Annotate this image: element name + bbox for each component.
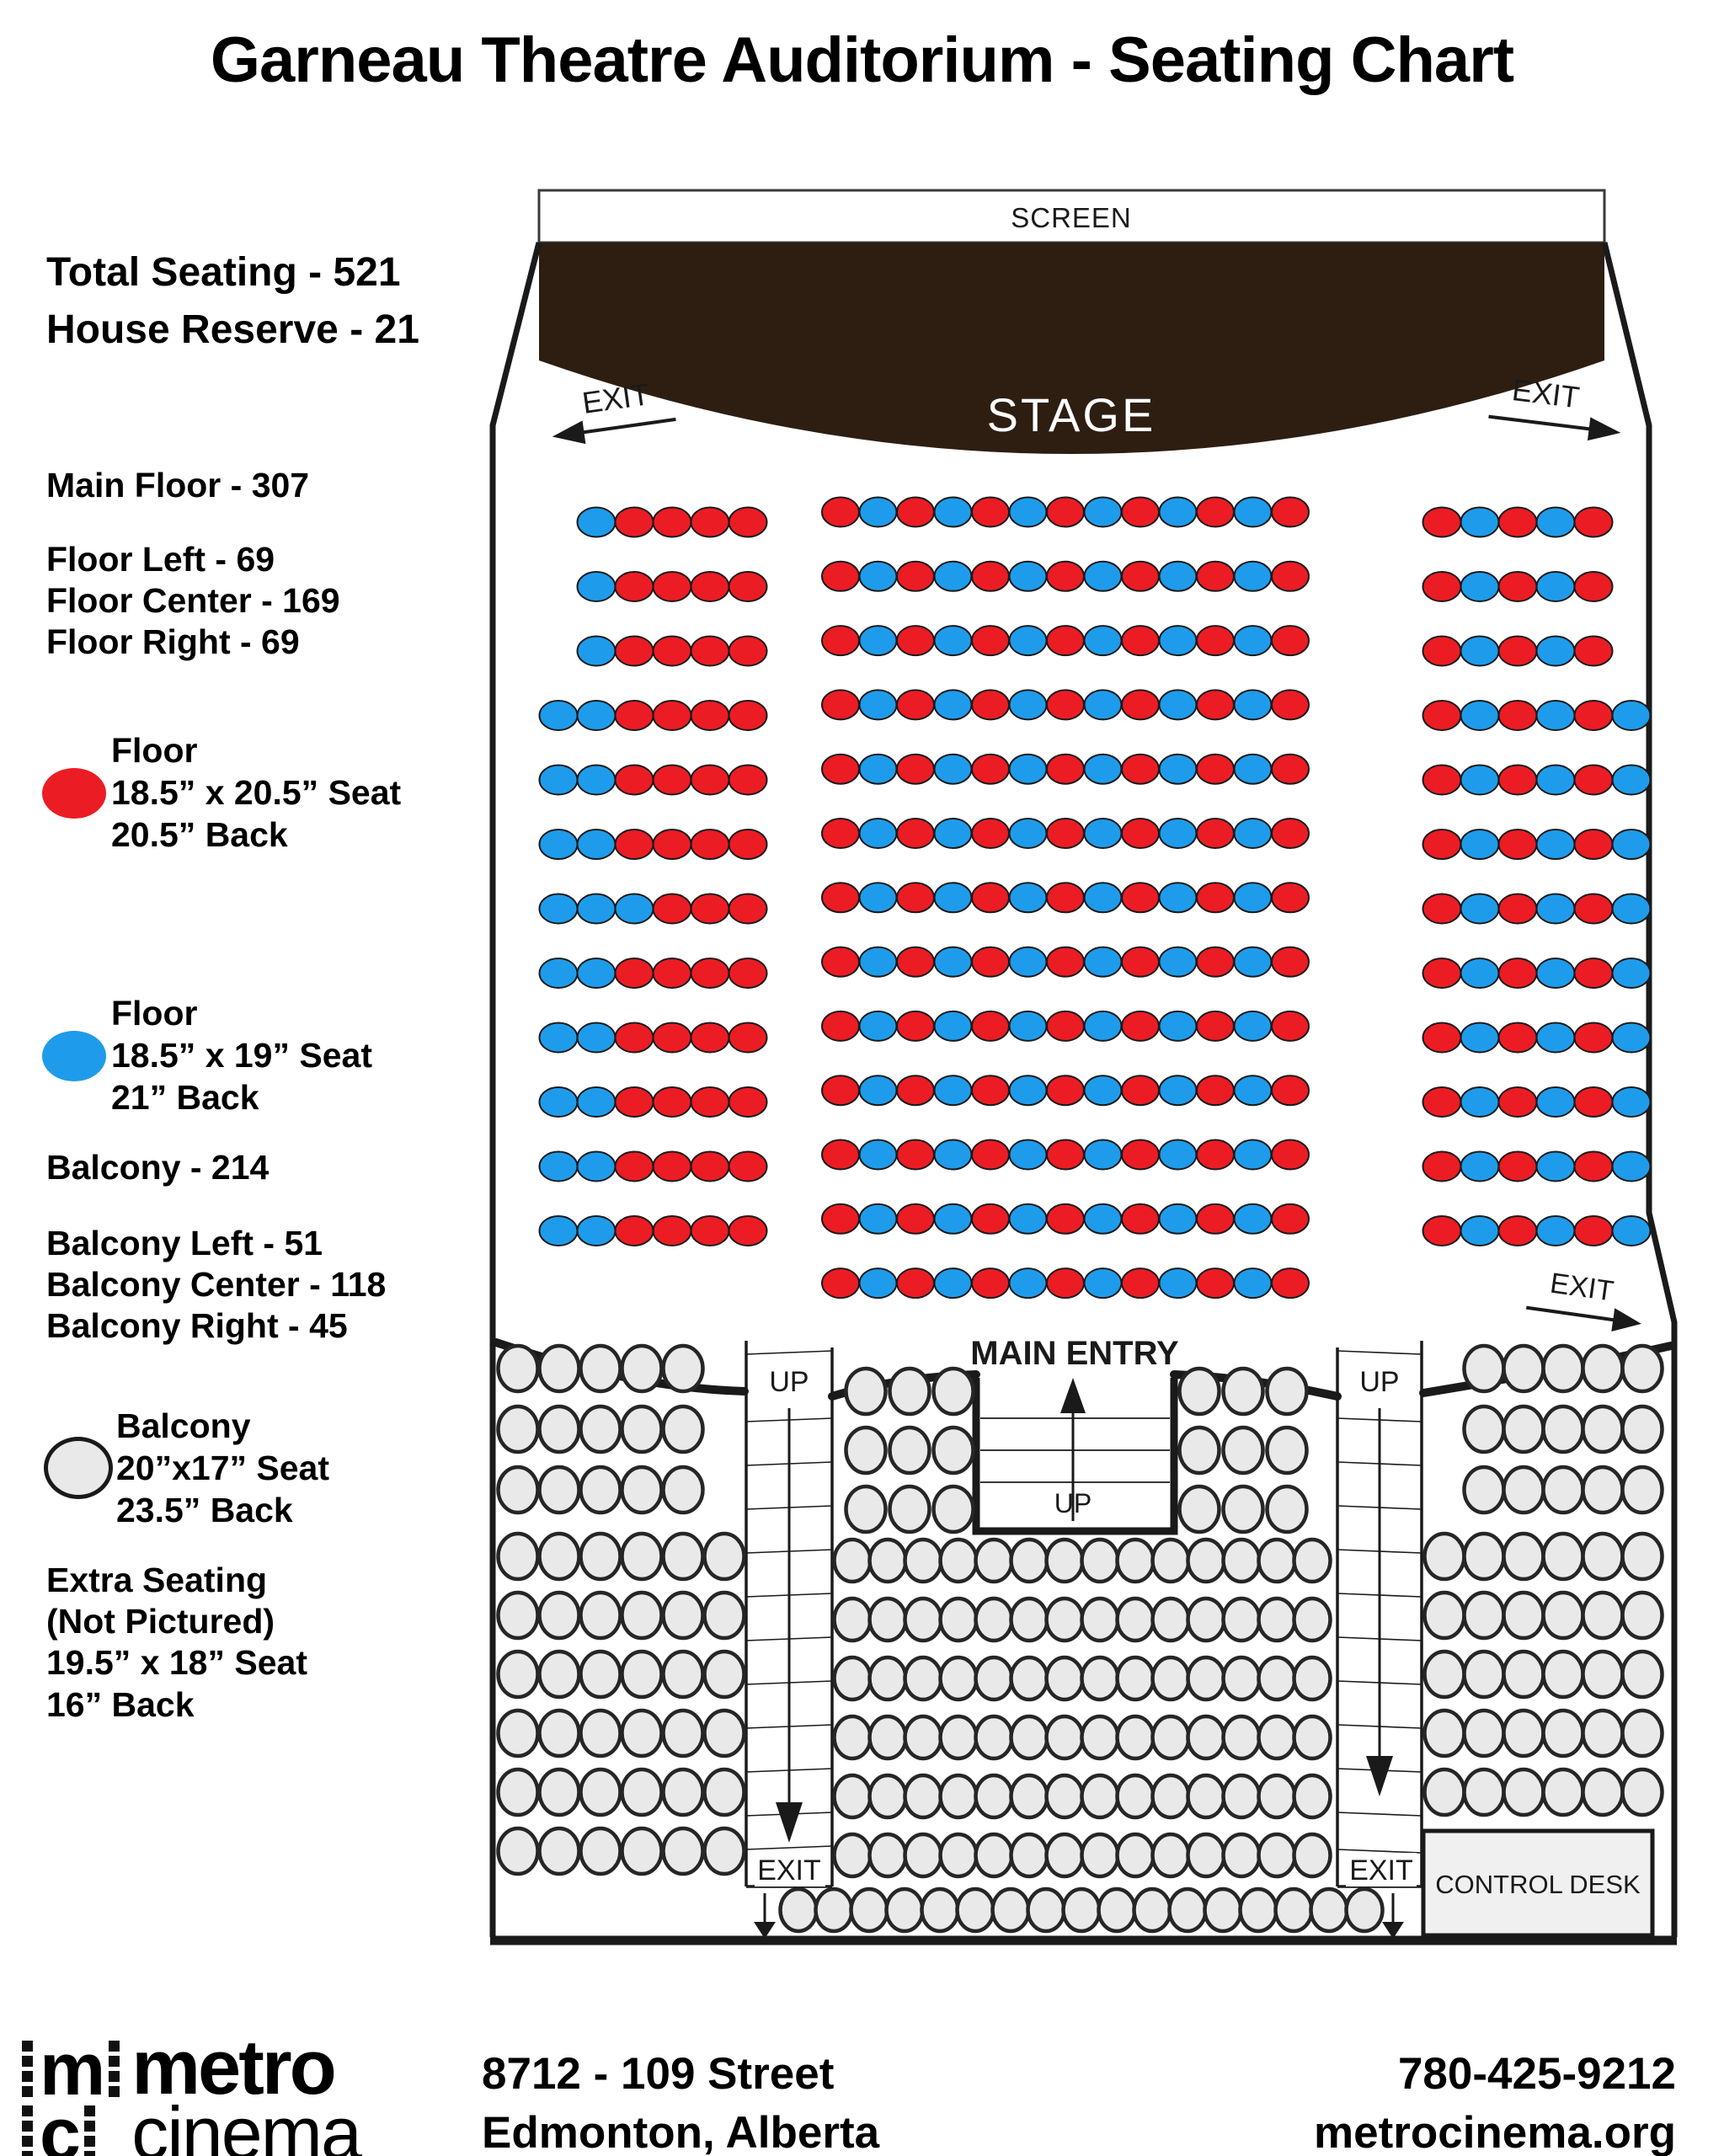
seat <box>1235 1011 1272 1041</box>
seat <box>1188 1834 1225 1876</box>
seat <box>860 1268 897 1298</box>
seat <box>581 1710 621 1756</box>
seat <box>691 894 729 924</box>
seat <box>1259 1657 1295 1700</box>
seat <box>1118 1775 1154 1817</box>
seat <box>860 1140 897 1170</box>
seat <box>1268 1428 1307 1473</box>
seat <box>1423 572 1461 601</box>
seats-balcony-center-flank-left <box>846 1369 974 1532</box>
seat <box>705 1534 745 1579</box>
seat <box>1425 1652 1465 1697</box>
seat <box>1197 498 1234 527</box>
seat <box>1085 498 1122 527</box>
seat <box>1499 637 1537 666</box>
seat <box>1160 819 1197 848</box>
seat <box>664 1534 703 1579</box>
seat <box>581 1652 621 1697</box>
seat <box>622 1467 662 1513</box>
seat <box>972 1140 1009 1170</box>
seat <box>616 958 654 988</box>
seat <box>1122 947 1159 977</box>
seat <box>822 1204 859 1234</box>
seat <box>1235 498 1272 527</box>
seat <box>1423 1023 1461 1053</box>
seat <box>1423 637 1461 666</box>
seat <box>846 1428 886 1473</box>
seat <box>1197 562 1234 591</box>
seat <box>1272 755 1309 784</box>
seat <box>654 1216 691 1246</box>
seat <box>1575 766 1613 795</box>
seat <box>1613 830 1651 859</box>
seat <box>1235 1140 1272 1170</box>
seat <box>540 1534 579 1579</box>
seat <box>654 830 691 859</box>
seat <box>622 1652 662 1697</box>
seat <box>897 883 934 912</box>
seat <box>499 1593 538 1638</box>
seat <box>1160 1204 1197 1234</box>
seat <box>1224 1834 1260 1876</box>
seat <box>1160 626 1197 655</box>
seat <box>1461 958 1499 988</box>
seat <box>1160 690 1197 719</box>
seat <box>581 1406 621 1452</box>
seat <box>1011 1598 1048 1641</box>
seat <box>654 1152 691 1182</box>
down-arrowhead-icon <box>1366 1756 1393 1796</box>
seat <box>1499 1216 1537 1246</box>
seat <box>897 947 934 977</box>
seat <box>540 1087 578 1117</box>
up-label: UP <box>1359 1366 1399 1398</box>
seat <box>1347 1889 1383 1931</box>
seat <box>941 1540 977 1582</box>
seat <box>870 1775 906 1817</box>
seat <box>1160 1268 1197 1298</box>
legend-back-size: 21” Back <box>111 1076 372 1118</box>
seat <box>1122 1075 1159 1105</box>
seat <box>822 883 859 912</box>
extra-line3: 19.5” x 18” Seat <box>46 1642 307 1684</box>
right-staircase: UP EXIT <box>1337 1341 1422 1939</box>
exit-arrow-right-icon <box>1489 417 1593 430</box>
seat <box>1613 1152 1651 1182</box>
seat <box>1197 1204 1234 1234</box>
seat <box>654 958 691 988</box>
seat <box>846 1369 886 1414</box>
seat <box>1235 1075 1272 1105</box>
seat <box>1544 1534 1583 1579</box>
exit-label: EXIT <box>757 1854 821 1886</box>
seat <box>1153 1598 1189 1641</box>
total-seating-stat: Total Seating - 521 <box>46 244 419 302</box>
seat <box>976 1775 1012 1817</box>
seat <box>540 1467 579 1513</box>
seat <box>1197 1268 1234 1298</box>
seat <box>1425 1534 1465 1579</box>
seat <box>1537 894 1575 924</box>
seat <box>860 498 897 527</box>
seat <box>1583 1652 1623 1697</box>
seat <box>890 1428 930 1473</box>
seat <box>972 562 1009 591</box>
legend-name: Floor <box>111 992 372 1034</box>
seat <box>578 572 616 601</box>
seat <box>1224 1598 1260 1641</box>
seat <box>1575 701 1613 730</box>
seat <box>1082 1834 1118 1876</box>
seat <box>622 1828 662 1874</box>
seat <box>654 508 691 537</box>
seat <box>1160 498 1197 527</box>
seat <box>1272 1075 1309 1105</box>
seat <box>622 1710 662 1756</box>
red-floor-seat-icon <box>42 768 106 819</box>
seat <box>616 894 654 924</box>
seat <box>664 1406 703 1452</box>
seat <box>1499 508 1537 537</box>
extra-line1: Extra Seating <box>46 1560 307 1601</box>
seat <box>1504 1593 1544 1638</box>
seat <box>654 894 691 924</box>
seat <box>499 1534 538 1579</box>
seat <box>1235 1204 1272 1234</box>
seat <box>1010 755 1047 784</box>
seating-chart-page: SCREEN STAGE EXIT EXIT EXIT <box>0 0 1724 2156</box>
seat <box>1294 1657 1331 1700</box>
seat <box>1504 1406 1544 1452</box>
seat <box>540 1828 579 1874</box>
seat <box>897 1204 934 1234</box>
seat <box>1613 958 1651 988</box>
seats-floor-center <box>822 498 1309 1299</box>
seat <box>1085 755 1122 784</box>
seat <box>835 1657 871 1700</box>
seat <box>1537 508 1575 537</box>
seat <box>1272 562 1309 591</box>
seat <box>581 1828 621 1874</box>
seat <box>897 690 934 719</box>
seat <box>729 958 767 988</box>
seat <box>1461 1216 1499 1246</box>
seat <box>835 1775 871 1817</box>
seat <box>1423 894 1461 924</box>
seat <box>935 947 972 977</box>
exit-arrowhead-right-icon <box>1588 417 1622 444</box>
seat <box>860 947 897 977</box>
seat <box>860 1075 897 1105</box>
seat <box>1047 562 1084 591</box>
seat <box>1544 1652 1583 1697</box>
seat <box>934 1486 974 1532</box>
seat <box>1294 1834 1331 1876</box>
seat <box>1160 1140 1197 1170</box>
seat <box>1272 498 1309 527</box>
seat <box>958 1889 994 1931</box>
seat <box>1575 508 1613 537</box>
seat <box>1583 1346 1623 1391</box>
seat <box>1272 626 1309 655</box>
seat <box>897 498 934 527</box>
seat <box>691 1216 729 1246</box>
seat <box>1499 572 1537 601</box>
seat <box>941 1834 977 1876</box>
seat <box>934 1369 974 1414</box>
seat <box>1294 1540 1331 1582</box>
seat <box>1235 819 1272 848</box>
seat <box>578 1216 616 1246</box>
seat <box>976 1540 1012 1582</box>
seat <box>1224 1369 1263 1414</box>
seat <box>691 701 729 730</box>
seat <box>1259 1598 1295 1641</box>
seat <box>1122 1140 1159 1170</box>
seat <box>890 1369 930 1414</box>
seat <box>622 1346 662 1391</box>
seat <box>654 572 691 601</box>
seat <box>1499 958 1537 988</box>
seat <box>1099 1889 1135 1931</box>
seat <box>691 637 729 666</box>
seat <box>1197 1140 1234 1170</box>
seat <box>1623 1593 1663 1638</box>
legend-seat-size: 20”x17” Seat <box>116 1447 329 1489</box>
seat <box>1047 947 1084 977</box>
seat <box>1268 1486 1307 1532</box>
legend-back-size: 23.5” Back <box>116 1489 329 1531</box>
seat <box>664 1346 703 1391</box>
seat <box>616 508 654 537</box>
seat <box>870 1834 906 1876</box>
seat <box>1047 819 1084 848</box>
seat <box>616 1023 654 1053</box>
seat <box>1272 1011 1309 1041</box>
seat <box>935 883 972 912</box>
address-city: Edmonton, Alberta <box>482 2104 879 2156</box>
seat <box>654 1023 691 1053</box>
seat <box>935 562 972 591</box>
seat <box>1465 1769 1504 1815</box>
seat <box>860 1011 897 1041</box>
stage-label: STAGE <box>987 388 1156 441</box>
seat <box>822 498 859 527</box>
seat <box>1160 1011 1197 1041</box>
seat <box>1272 690 1309 719</box>
seat <box>1047 755 1084 784</box>
seat <box>578 701 616 730</box>
seat <box>972 883 1009 912</box>
floor-right-stat: Floor Right - 69 <box>46 622 340 663</box>
seat <box>1188 1598 1225 1641</box>
seat <box>941 1716 977 1758</box>
seat <box>822 755 859 784</box>
legend-name: Balcony <box>116 1405 329 1447</box>
seat <box>935 819 972 848</box>
seat <box>499 1346 538 1391</box>
exit-label: EXIT <box>580 376 652 420</box>
seat <box>1122 626 1159 655</box>
seat <box>1461 1087 1499 1117</box>
seat <box>1504 1467 1544 1513</box>
seat <box>581 1534 621 1579</box>
seat <box>1544 1710 1583 1756</box>
seat <box>1118 1657 1154 1700</box>
seat <box>1085 562 1122 591</box>
seat <box>935 1268 972 1298</box>
seat <box>1047 1834 1083 1876</box>
seat <box>1575 637 1613 666</box>
seat <box>540 1346 579 1391</box>
seat <box>578 766 616 795</box>
seat <box>835 1598 871 1641</box>
seat <box>616 1216 654 1246</box>
control-desk: CONTROL DESK <box>1423 1831 1652 1935</box>
seat <box>1011 1540 1048 1582</box>
seat <box>1085 1140 1122 1170</box>
seat <box>1082 1598 1118 1641</box>
seat <box>905 1540 942 1582</box>
seat <box>822 1075 859 1105</box>
seat <box>1504 1534 1544 1579</box>
seat <box>1118 1598 1154 1641</box>
seat <box>1423 1216 1461 1246</box>
seat <box>1153 1540 1189 1582</box>
seat <box>822 626 859 655</box>
seat <box>578 1152 616 1182</box>
seat <box>1188 1716 1225 1758</box>
up-label: UP <box>769 1366 809 1398</box>
seat <box>870 1598 906 1641</box>
seat <box>1461 894 1499 924</box>
seat <box>729 1087 767 1117</box>
seat <box>1461 830 1499 859</box>
seat <box>1235 947 1272 977</box>
seat <box>1259 1834 1295 1876</box>
seat <box>1504 1710 1544 1756</box>
exit-arrow-right-icon <box>1526 1308 1616 1321</box>
seat <box>1423 701 1461 730</box>
seat <box>1153 1716 1189 1758</box>
exit-arrowhead-right-icon <box>1611 1308 1643 1335</box>
seat <box>1259 1775 1295 1817</box>
seat <box>941 1598 977 1641</box>
seat <box>1082 1657 1118 1700</box>
seat <box>1311 1889 1348 1931</box>
seat <box>822 819 859 848</box>
seat <box>622 1593 662 1638</box>
seat <box>1047 1657 1083 1700</box>
seats-balcony-center-flank-right <box>1180 1369 1307 1532</box>
legend-seat-size: 18.5” x 19” Seat <box>111 1034 372 1076</box>
seat <box>1272 1204 1309 1234</box>
seat <box>860 755 897 784</box>
left-staircase: UP EXIT <box>746 1341 832 1939</box>
seat <box>1235 1268 1272 1298</box>
seat <box>1153 1775 1189 1817</box>
seat <box>890 1486 930 1532</box>
seat <box>691 958 729 988</box>
seat <box>905 1598 942 1641</box>
exit-label: EXIT <box>1510 372 1581 414</box>
seat <box>729 1152 767 1182</box>
seat <box>1272 883 1309 912</box>
extra-seating-note: Extra Seating (Not Pictured) 19.5” x 18”… <box>46 1560 307 1726</box>
seat <box>1160 883 1197 912</box>
seat <box>1010 1204 1047 1234</box>
seat <box>935 498 972 527</box>
seat <box>1575 958 1613 988</box>
exit-label: EXIT <box>1349 1854 1413 1886</box>
seat <box>1461 701 1499 730</box>
seat <box>540 894 578 924</box>
seat <box>972 819 1009 848</box>
seats-balcony-center-main <box>835 1540 1331 1876</box>
seat <box>1465 1346 1504 1391</box>
seat <box>1499 1152 1537 1182</box>
seat <box>616 1087 654 1117</box>
seat <box>1544 1593 1583 1638</box>
seat <box>1425 1710 1465 1756</box>
seat <box>972 626 1009 655</box>
seat <box>499 1406 538 1452</box>
seat <box>1461 1023 1499 1053</box>
seat <box>729 637 767 666</box>
seat <box>1423 1087 1461 1117</box>
seat <box>1575 1023 1613 1053</box>
seat <box>1423 1152 1461 1182</box>
seat <box>976 1598 1012 1641</box>
seat <box>851 1889 888 1931</box>
seat <box>905 1716 942 1758</box>
seat <box>1010 1140 1047 1170</box>
seat <box>1010 883 1047 912</box>
seat <box>1575 830 1613 859</box>
seat <box>1537 766 1575 795</box>
seat <box>729 701 767 730</box>
balcony-stat: Balcony - 214 <box>46 1147 269 1188</box>
seat <box>1575 572 1613 601</box>
up-label: UP <box>1054 1488 1092 1518</box>
seat <box>1235 562 1272 591</box>
seat <box>1122 819 1159 848</box>
extra-line4: 16” Back <box>46 1684 307 1726</box>
seat <box>1082 1540 1118 1582</box>
seat <box>1205 1889 1241 1931</box>
seat <box>1461 572 1499 601</box>
seat <box>499 1710 538 1756</box>
seat <box>540 1216 578 1246</box>
seat <box>1575 894 1613 924</box>
seat <box>622 1406 662 1452</box>
seat <box>1499 1023 1537 1053</box>
seat <box>860 1204 897 1234</box>
seat <box>1613 1216 1651 1246</box>
seat <box>870 1540 906 1582</box>
seat <box>1259 1716 1295 1758</box>
control-desk-label: CONTROL DESK <box>1435 1870 1641 1899</box>
legend-name: Floor <box>111 729 401 771</box>
seat <box>654 701 691 730</box>
seat <box>1224 1540 1260 1582</box>
seat <box>1544 1346 1583 1391</box>
seat <box>1122 1204 1159 1234</box>
seat <box>616 572 654 601</box>
seat <box>1235 626 1272 655</box>
seat <box>691 1023 729 1053</box>
seat <box>941 1775 977 1817</box>
